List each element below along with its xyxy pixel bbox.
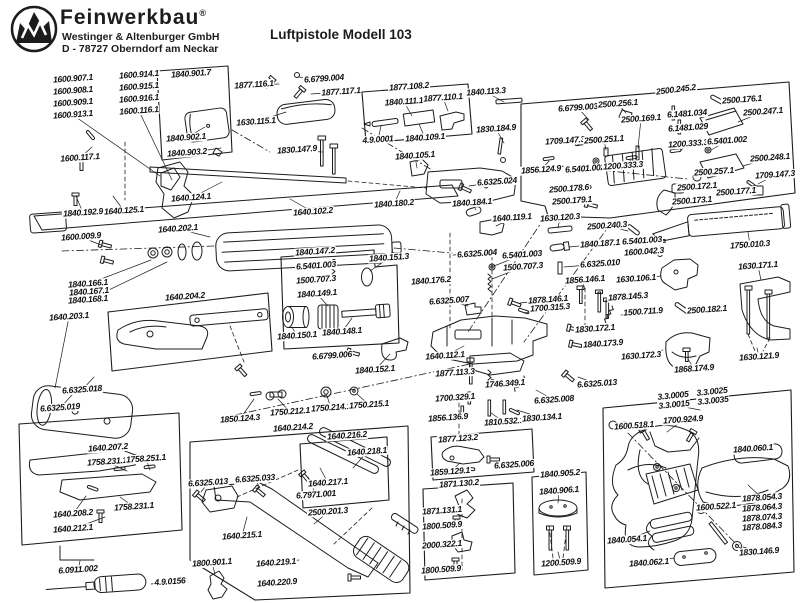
leader-line <box>758 175 775 184</box>
leader-line <box>394 191 400 204</box>
leader-line <box>378 126 381 140</box>
leader-line <box>327 396 331 408</box>
leader-line <box>317 294 328 306</box>
leader-line <box>240 399 254 419</box>
leader-line <box>445 346 464 356</box>
leader-line <box>419 124 425 138</box>
leader-line <box>453 254 477 255</box>
small-fasteners-row-sketch <box>250 387 358 400</box>
company-line-2: D - 78727 Oberndorf am Neckar <box>62 43 218 55</box>
leader-line <box>674 405 700 410</box>
leader-line <box>618 104 626 113</box>
leader-line <box>415 156 417 168</box>
leader-line <box>455 372 470 373</box>
leader-lines <box>55 77 775 584</box>
rear-sight-parts-sketch <box>72 130 194 218</box>
piston-parts-sketch <box>283 260 409 361</box>
leader-line <box>139 111 172 180</box>
leader-line <box>585 163 595 169</box>
leader-line <box>78 561 80 570</box>
leader-line <box>517 410 542 418</box>
leader-line <box>450 463 460 472</box>
page-title: Luftpistole Modell 103 <box>270 27 412 42</box>
leader-line <box>757 348 759 357</box>
leader-line <box>494 255 522 266</box>
leader-line <box>711 141 727 150</box>
cocking-rod-sketch <box>150 73 346 184</box>
feinwerkbau-logo-icon <box>8 3 60 55</box>
leader-line <box>472 203 476 210</box>
leader-line <box>644 252 658 255</box>
leader-line <box>256 112 286 122</box>
leader-line <box>636 276 661 279</box>
leader-line <box>627 531 650 540</box>
leader-line <box>621 312 643 315</box>
trigger-group-sketch <box>543 94 763 215</box>
leader-line <box>492 267 523 279</box>
leader-line <box>564 264 600 267</box>
cocking-lever-sketch <box>193 426 420 585</box>
air-cylinder-sketch <box>30 224 402 440</box>
leader-line <box>541 161 549 170</box>
leader-line <box>679 144 688 152</box>
leader-line <box>254 84 279 85</box>
leader-line <box>623 160 631 166</box>
leader-line <box>558 552 561 563</box>
leader-line <box>191 182 222 198</box>
box-1640-207-2 <box>19 413 182 545</box>
leader-line <box>743 547 759 552</box>
leader-line <box>607 226 628 231</box>
leader-line <box>442 506 458 511</box>
leader-line <box>723 100 742 104</box>
leader-line <box>486 92 504 102</box>
leader-line <box>80 147 92 158</box>
box-1640-216-2 <box>300 437 389 508</box>
leader-line <box>308 477 316 495</box>
leader-line <box>292 327 297 336</box>
leader-line <box>73 496 86 514</box>
leader-line <box>55 317 69 388</box>
tools-sketch <box>46 546 227 599</box>
leader-line <box>187 148 221 153</box>
barrel-weight-sketch <box>539 500 577 550</box>
leader-line <box>277 578 295 583</box>
leader-line <box>676 113 687 114</box>
brand-name: Feinwerkbau® <box>60 6 207 30</box>
leader-line <box>536 390 554 400</box>
leader-line <box>441 566 457 570</box>
leader-line <box>357 394 369 405</box>
parts-diagram-page: Feinwerkbau® Westinger & Altenburger Gmb… <box>0 0 800 603</box>
leader-line <box>491 413 504 422</box>
grip-assembly-sketch <box>609 421 790 566</box>
leader-line <box>73 115 160 176</box>
leader-line <box>186 127 205 138</box>
leader-line <box>558 491 559 503</box>
leader-line <box>743 158 770 166</box>
leader-line <box>578 377 597 384</box>
barrel-sketch <box>29 98 522 233</box>
leader-line <box>638 119 641 148</box>
leader-line <box>298 77 324 79</box>
exploded-diagram-art <box>0 0 800 603</box>
leader-line <box>642 241 656 243</box>
group-boxes <box>19 66 795 600</box>
leader-line <box>673 199 692 201</box>
leader-line <box>469 182 497 186</box>
leader-line <box>370 258 389 271</box>
leader-line <box>120 497 134 507</box>
leader-line <box>151 582 170 584</box>
leader-line <box>290 199 313 212</box>
leader-line <box>276 560 299 563</box>
seater-parts-sketch <box>364 110 464 130</box>
leader-line <box>442 522 459 526</box>
box-1877-108-2 <box>362 84 472 143</box>
leader-line <box>558 218 560 228</box>
leader-line <box>442 542 456 545</box>
leader-line <box>113 196 124 211</box>
leader-line <box>60 395 72 408</box>
leader-line <box>297 150 322 152</box>
leader-line <box>689 310 707 312</box>
leader-line <box>178 229 210 237</box>
leader-line <box>649 558 674 563</box>
leader-line <box>449 301 468 306</box>
leader-line <box>736 191 751 192</box>
leader-line <box>212 563 215 574</box>
leader-line <box>738 112 763 122</box>
leader-line <box>578 108 589 120</box>
leader-line <box>375 354 390 370</box>
leader-line <box>491 379 505 384</box>
leader-line <box>81 237 101 245</box>
leader-line <box>520 300 548 303</box>
leader-line <box>88 262 167 300</box>
leader-line <box>748 485 762 498</box>
leader-line <box>311 92 341 94</box>
latch-lever-sketch <box>442 446 499 471</box>
leader-line <box>569 244 600 247</box>
leader-line <box>82 377 94 390</box>
box-1640-204-2 <box>108 293 272 371</box>
leader-line <box>683 187 697 189</box>
leader-line <box>88 260 151 284</box>
registered-mark: ® <box>199 8 207 18</box>
leader-line <box>443 98 448 111</box>
leader-line <box>496 461 514 465</box>
box-1840-901-7 <box>157 66 232 160</box>
company-line-1: Westinger & Altenburger GmbH <box>62 31 220 43</box>
clamp-parts-sketch <box>452 490 475 571</box>
leader-line <box>201 483 208 492</box>
leader-line <box>758 266 761 280</box>
leader-line <box>320 468 328 483</box>
leader-line <box>641 350 663 356</box>
leader-line <box>242 517 247 536</box>
leader-line <box>314 512 328 524</box>
sleeve-part-sketch <box>184 107 230 156</box>
leader-line <box>748 232 750 245</box>
box-1871-130-2 <box>423 483 515 580</box>
sear-parts-sketch <box>29 450 156 523</box>
leader-line <box>342 318 352 332</box>
